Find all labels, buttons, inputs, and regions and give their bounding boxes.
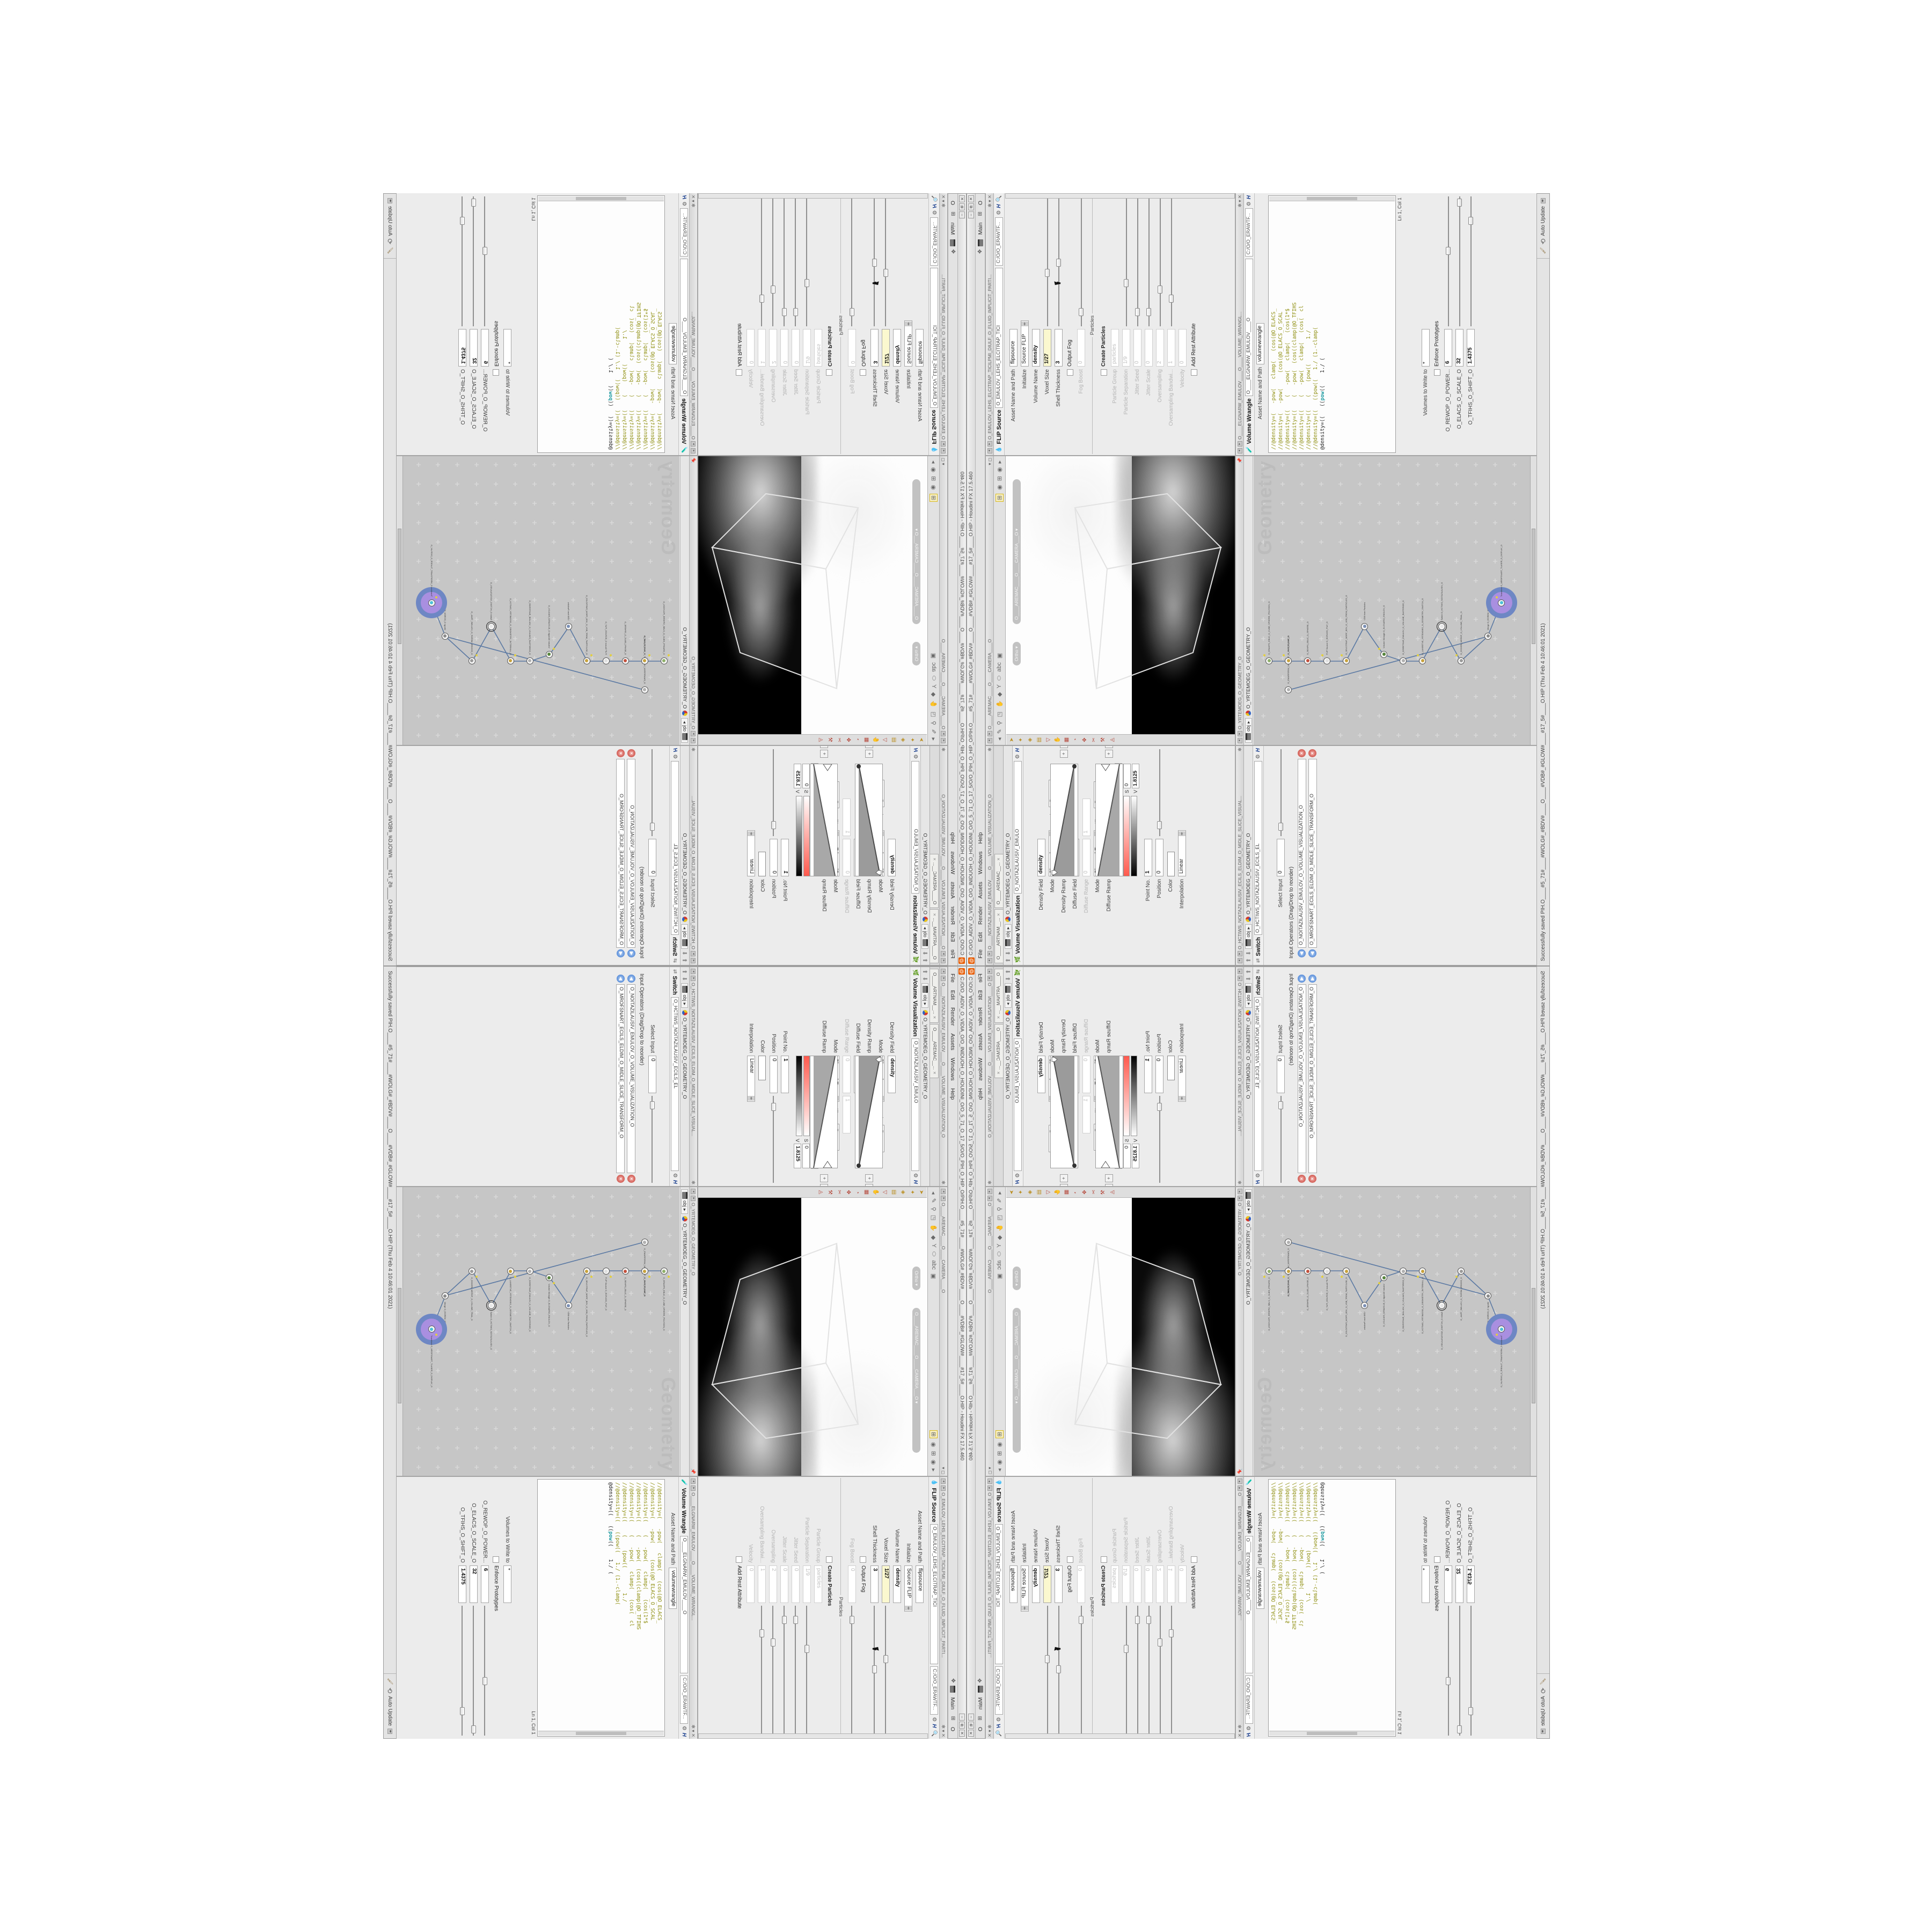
diffuse-ramp-widget[interactable] (1095, 1056, 1123, 1168)
toolbar-icon[interactable]: ⚲ (996, 1207, 1003, 1211)
slider-knob[interactable] (1045, 1655, 1050, 1663)
checkbox[interactable] (1067, 1556, 1073, 1563)
gear-icon[interactable]: ⚙ (1015, 754, 1021, 759)
pane-arrow-right-icon[interactable]: ▸ (941, 441, 946, 447)
toolbar-icon[interactable]: ▸ (930, 460, 937, 464)
toolbar-icon[interactable]: ◳ (996, 1215, 1003, 1220)
toolbar-icon[interactable]: ◳ (996, 712, 1003, 717)
network-node[interactable] (1361, 1302, 1368, 1309)
param-dropdown[interactable]: Linear (1178, 830, 1186, 876)
node-name-field[interactable]: O____ELGNARW_EMULOV____O (680, 1536, 688, 1673)
ortho-pill[interactable]: Ortho ▾ (912, 642, 920, 665)
menu-file[interactable]: File (949, 946, 957, 962)
reorder-icon[interactable]: ◀ (1298, 949, 1306, 957)
param-slider[interactable] (1168, 196, 1175, 326)
toolbar-icon[interactable]: ⚲ (930, 721, 937, 725)
menu-file[interactable]: File (977, 970, 984, 986)
operator-list-item[interactable]: ◀O_NOITAZILAUSIV_EMULOV_O_VOLUME_VISUALI… (1297, 975, 1307, 1183)
param-field[interactable]: 0 (770, 839, 778, 876)
tool-icon[interactable]: ✥ (845, 737, 851, 742)
param-field[interactable]: 1/27 (1043, 1565, 1051, 1603)
param-slider[interactable] (1277, 749, 1284, 836)
slider-knob[interactable] (471, 199, 476, 207)
tool-icon[interactable]: ✂ (836, 1190, 842, 1194)
reorder-icon[interactable]: ◀ (617, 975, 625, 983)
param-slider[interactable] (1156, 1096, 1163, 1183)
param-field[interactable]: 0 (1133, 1565, 1141, 1603)
pan-icon[interactable]: ✥ (977, 247, 983, 255)
slider-knob[interactable] (650, 1101, 655, 1109)
param-field[interactable]: 32 (1455, 329, 1463, 367)
close-icon[interactable]: ✕ (932, 858, 936, 861)
node-name-field[interactable]: O_NOITAZILAUSIV_EMULO (911, 761, 919, 893)
param-slider[interactable] (1157, 196, 1163, 326)
slider-knob[interactable] (1468, 1707, 1473, 1715)
checkbox[interactable] (1434, 369, 1440, 376)
nav-fwd-icon[interactable]: ⬇ (1005, 951, 1012, 956)
param-field[interactable]: 0 (1082, 839, 1091, 876)
tool-icon[interactable]: ⚒ (827, 1190, 833, 1195)
param-slider[interactable] (649, 1096, 656, 1183)
param-field[interactable]: * (503, 1565, 511, 1603)
breadcrumb[interactable]: obj▸ (1005, 924, 1012, 949)
slider-knob[interactable] (804, 279, 809, 287)
tab-volume-visualization[interactable]: Volume Visualization (1015, 896, 1021, 954)
pane-arrow-right-icon[interactable]: ▸ (691, 1196, 696, 1201)
menu-render[interactable]: Render (977, 1004, 984, 1029)
toolbar-icon[interactable]: ✋ (996, 700, 1003, 708)
grid-layout-icon[interactable]: ⊞ (996, 1430, 1004, 1438)
ramp-add-icon[interactable]: + (865, 750, 873, 758)
tool-icon[interactable]: ✦ (909, 1190, 915, 1194)
network-node[interactable] (1498, 1326, 1505, 1333)
tool-icon[interactable]: ✂ (836, 737, 842, 742)
reorder-icon[interactable]: ◀ (627, 949, 635, 957)
param-slider[interactable] (649, 749, 656, 836)
checkbox[interactable] (860, 1556, 867, 1563)
menu-extra[interactable]: O (949, 197, 957, 209)
delete-icon[interactable]: ✕ (1308, 749, 1316, 757)
tool-icon[interactable]: ◬ (1109, 738, 1115, 742)
update-toggle-icon[interactable]: ◂▸ (387, 1729, 392, 1734)
param-field[interactable]: 1 (1167, 1565, 1175, 1603)
param-field[interactable]: density (1032, 1565, 1040, 1603)
slider-knob[interactable] (1157, 1103, 1162, 1111)
param-field[interactable]: 1 (1167, 329, 1175, 367)
tool-icon[interactable]: ✋ (1055, 736, 1060, 743)
param-field[interactable]: 1/27 (882, 329, 890, 367)
param-dropdown[interactable]: Source FLIP (904, 320, 912, 367)
pane-arrow-left-icon[interactable]: ◂ (941, 958, 946, 963)
param-dropdown[interactable]: Source FLIP (904, 1565, 912, 1612)
param-field[interactable]: density (1037, 839, 1045, 876)
gear-icon[interactable]: ⚙ (996, 210, 1002, 215)
tool-icon[interactable]: ✋ (873, 1189, 879, 1195)
tool-icon[interactable]: ▽ (882, 1190, 888, 1195)
network-node[interactable] (1323, 657, 1330, 664)
value-gradient-bar[interactable] (796, 1056, 802, 1136)
pane-arrow-left-icon[interactable]: ◂ (941, 1189, 946, 1194)
pane-arrow-left-icon[interactable]: ◂ (987, 1479, 992, 1484)
slider-knob[interactable] (850, 308, 854, 316)
tool-icon[interactable]: ◔ (1073, 1190, 1079, 1194)
network-node[interactable] (1458, 1268, 1465, 1275)
pane-arrow-left-icon[interactable]: ◂ (691, 1189, 696, 1194)
menu-assets[interactable]: Assets (977, 878, 984, 903)
network-node[interactable] (507, 1268, 514, 1275)
node-name-field[interactable]: O____ELGNARW_EMULOV____O (1245, 1536, 1253, 1673)
tool-icon[interactable]: ➤ (918, 737, 924, 742)
network-node[interactable] (565, 623, 572, 630)
slider-knob[interactable] (1146, 1616, 1151, 1624)
param-slider[interactable] (1445, 1606, 1452, 1736)
val-field[interactable]: 1.8125 (1132, 1144, 1139, 1168)
network-node[interactable] (622, 1268, 629, 1275)
pane-arrow-left-icon[interactable]: ◂ (691, 958, 696, 963)
close-icon[interactable]: ✕ (997, 913, 1001, 916)
pane-tab[interactable]: O____ARTNAM__...✕ (994, 969, 1003, 1023)
tab-volume-wrangle[interactable]: Volume Wrangle (1246, 1488, 1253, 1533)
restore-button[interactable]: ⧉ (959, 203, 965, 210)
close-icon[interactable]: ✕ (997, 1016, 1001, 1019)
tool-icon[interactable]: ◔ (854, 1190, 860, 1194)
pane-arrow-right-icon[interactable]: ▸ (941, 1196, 946, 1201)
param-slider[interactable] (781, 196, 788, 326)
param-field[interactable]: 0 (1277, 1056, 1285, 1093)
param-slider[interactable] (792, 1606, 799, 1736)
nav-back-icon[interactable]: ⬆ (922, 958, 929, 963)
delete-icon[interactable]: ✕ (627, 1175, 635, 1183)
close-button[interactable]: ✕ (959, 1730, 965, 1737)
toolbar-icon[interactable]: Y (930, 1243, 937, 1247)
param-field[interactable]: 1 (1144, 1056, 1152, 1093)
pane-arrow-right-icon[interactable]: ▸ (691, 731, 696, 736)
layout-grid-icon[interactable]: ⊞ (950, 1714, 956, 1722)
magnifier-icon[interactable]: 🔍 (931, 1730, 937, 1737)
close-icon[interactable]: ✕ (997, 858, 1001, 861)
toolbar-icon[interactable]: ✋ (996, 1224, 1003, 1232)
network-canvas[interactable]: Geometry O_ERAHPS_EBUC_O_CUBE_SPHERE_POL… (1254, 456, 1530, 745)
pane-arrow-right-icon[interactable]: ▸ (987, 976, 992, 981)
network-node[interactable] (641, 686, 648, 693)
tool-icon[interactable]: ✦ (909, 737, 915, 742)
slider-knob[interactable] (1079, 1616, 1084, 1624)
pane-tab[interactable]: O____AREMAC__...✕ (994, 854, 1003, 908)
asset-path-field[interactable]: C:/O/O_ERAWTF... (680, 1675, 688, 1724)
toolbar-icon[interactable]: ▣ (996, 653, 1003, 658)
param-slider[interactable] (1157, 1606, 1163, 1736)
param-field[interactable]: 32 (470, 1565, 478, 1603)
param-field[interactable]: particles (1111, 1565, 1119, 1603)
desktop-selector[interactable]: Main (949, 1694, 957, 1714)
param-field[interactable]: 1.4375 (1467, 329, 1475, 367)
pane-arrow-right-icon[interactable]: ▸ (987, 1485, 992, 1491)
slider-knob[interactable] (1457, 199, 1462, 207)
pane-arrow-left-icon[interactable]: ◂ (1238, 738, 1242, 743)
restore-button[interactable]: ⧉ (959, 1722, 965, 1729)
param-field[interactable]: 2 (1156, 329, 1164, 367)
update-toggle-icon[interactable]: ◂▸ (1541, 1729, 1546, 1734)
value-gradient-bar[interactable] (1131, 1056, 1137, 1136)
param-field[interactable]: flipsource (1009, 329, 1018, 367)
tool-icon[interactable]: ▦ (863, 737, 869, 742)
pane-arrow-left-icon[interactable]: ◂ (691, 1479, 696, 1484)
ramp-add-icon[interactable]: + (1105, 750, 1113, 758)
network-node[interactable] (1265, 657, 1272, 664)
minimize-button[interactable]: − (968, 211, 974, 218)
param-field[interactable]: 1 (1082, 1096, 1091, 1133)
pane-arrow-right-icon[interactable]: ▸ (941, 976, 946, 981)
pane-tab[interactable]: O____AREMAC__...✕ (930, 1024, 939, 1078)
ramp-del-icon[interactable]: ✕ (865, 1184, 873, 1186)
network-canvas[interactable]: Geometry O_ERAHPS_EBUC_O_CUBE_SPHERE_POL… (1254, 1187, 1530, 1476)
breadcrumb[interactable]: obj▸ (682, 718, 689, 743)
pane-vscrollbar[interactable] (1005, 193, 1235, 199)
network-node[interactable] (641, 657, 648, 664)
pane-arrow-left-icon[interactable]: ◂ (1238, 1189, 1242, 1194)
viewport-canvas[interactable]: Ortho ▾ O____AREMAC____O____CAMERA___O ▾ (1006, 456, 1235, 734)
toolbar-icon[interactable]: ✎ (930, 729, 937, 734)
tool-icon[interactable]: ◬ (818, 738, 824, 742)
network-node[interactable] (526, 657, 533, 664)
tab-flip-source[interactable]: FLIP Source (996, 1488, 1002, 1522)
ramp-del-icon[interactable]: ✕ (1060, 1184, 1068, 1186)
slider-knob[interactable] (771, 1638, 775, 1646)
menu-edit[interactable]: Edit (949, 928, 957, 946)
toolbar-icon[interactable]: ◉ (996, 485, 1003, 490)
param-field[interactable]: particles (1111, 329, 1119, 367)
asset-path-field[interactable]: C:/O/O_ERAWTF... (1245, 1675, 1253, 1724)
param-field[interactable]: 6 (1444, 329, 1452, 367)
toolbar-icon[interactable]: ◉ (996, 1442, 1003, 1447)
reorder-icon[interactable]: ◀ (627, 975, 635, 983)
delete-icon[interactable]: ✕ (1298, 749, 1306, 757)
param-field[interactable]: 0 (1145, 329, 1153, 367)
tab-volume-wrangle[interactable]: Volume Wrangle (681, 398, 687, 444)
param-field[interactable]: density (1032, 329, 1040, 367)
operator-list-item[interactable]: ◀O_NOITAZILAUSIV_EMULOV_O_VOLUME_VISUALI… (1297, 749, 1307, 957)
pane-arrow-left-icon[interactable]: ◂ (1238, 1479, 1242, 1484)
saturation-gradient-bar[interactable] (1123, 796, 1130, 876)
node-name-field[interactable]: O_NOITAZILAUSIV_EMULO (1014, 761, 1022, 893)
ramp-del-icon[interactable]: ✕ (1105, 1184, 1113, 1186)
color-swatch[interactable] (1167, 1056, 1175, 1080)
param-field[interactable]: 0 (747, 329, 755, 367)
network-node[interactable] (1304, 657, 1311, 664)
menu-file[interactable]: File (949, 970, 957, 986)
pane-vscrollbar[interactable] (698, 193, 928, 199)
param-field[interactable]: 1 (843, 1096, 851, 1133)
asset-path-field[interactable]: C:/O/O_ERAWTF... (680, 208, 688, 257)
restore-button[interactable]: ⧉ (968, 203, 974, 210)
param-field[interactable]: 0 (1077, 329, 1085, 367)
tool-icon[interactable]: ◬ (818, 1190, 824, 1195)
slider-knob[interactable] (650, 823, 655, 831)
checkbox[interactable] (826, 1556, 833, 1563)
tool-icon[interactable]: ▤ (1036, 737, 1042, 742)
pane-arrow-left-icon[interactable]: ◂ (1238, 969, 1242, 974)
breadcrumb[interactable]: obj▸ (1245, 718, 1252, 743)
toolbar-icon[interactable]: ▸ (996, 1468, 1003, 1472)
param-field[interactable]: density (888, 1056, 896, 1093)
gear-icon[interactable]: ⚙ (1246, 201, 1252, 206)
pane-arrow-left-icon[interactable]: ◂ (987, 448, 992, 453)
desktop-selector[interactable]: Main (977, 1694, 984, 1714)
ramp-del-icon[interactable]: ✕ (1105, 746, 1113, 748)
network-node[interactable] (1458, 657, 1465, 664)
checkbox[interactable] (1101, 369, 1107, 376)
gear-icon[interactable]: ⚙ (1246, 1726, 1252, 1731)
menu-extra[interactable]: O (977, 1723, 984, 1735)
node-name-field[interactable]: O____ELGNARW_EMULOV____O (1245, 259, 1253, 396)
param-slider[interactable] (770, 749, 777, 836)
value-gradient-bar[interactable] (796, 796, 802, 876)
tool-icon[interactable]: ✦ (1018, 737, 1024, 742)
network-node[interactable] (428, 599, 435, 606)
menu-edit[interactable]: Edit (977, 986, 984, 1004)
pane-arrow-left-icon[interactable]: ◂ (691, 448, 696, 453)
pane-arrow-left-icon[interactable]: ◂ (987, 958, 992, 963)
param-dropdown[interactable]: Source FLIP (1021, 1565, 1029, 1612)
sat-field[interactable]: 0 (802, 1144, 810, 1168)
reorder-icon[interactable]: ◀ (1298, 975, 1306, 983)
network-node[interactable] (1498, 599, 1505, 606)
toolbar-icon[interactable]: ⊞ (996, 476, 1003, 481)
tool-icon[interactable]: ◈ (900, 1190, 906, 1195)
menu-help[interactable]: Help (949, 1085, 957, 1104)
slider-knob[interactable] (460, 217, 465, 225)
param-field[interactable]: 0 (1155, 839, 1163, 876)
delete-icon[interactable]: ✕ (627, 749, 635, 757)
toolbar-icon[interactable]: ⊞ (996, 1451, 1003, 1456)
param-slider[interactable] (1467, 196, 1474, 326)
tool-icon[interactable]: ▦ (863, 1190, 869, 1195)
slider-knob[interactable] (482, 1677, 487, 1685)
network-node[interactable] (661, 1268, 668, 1275)
operator-list-item[interactable]: ◀O_NOITAZILAUSIV_EMULOV_O_VOLUME_VISUALI… (626, 749, 636, 957)
network-node[interactable] (488, 1302, 495, 1309)
diffuse-ramp-widget[interactable] (810, 764, 838, 876)
pane-arrow-right-icon[interactable]: ▸ (691, 1485, 696, 1491)
toolbar-icon[interactable]: ▣ (996, 1274, 1003, 1279)
tab-volume-visualization[interactable]: Volume Visualization (1015, 978, 1021, 1036)
tool-icon[interactable]: ✦ (1018, 1190, 1024, 1194)
network-hscrollbar[interactable] (1530, 1187, 1536, 1476)
slider-knob[interactable] (793, 1616, 798, 1624)
param-field[interactable]: 0 (1179, 1565, 1187, 1603)
tool-icon[interactable]: ◈ (1027, 1190, 1033, 1195)
tool-icon[interactable]: ◬ (1109, 1190, 1115, 1195)
slider-knob[interactable] (771, 1103, 776, 1111)
refresh-icon[interactable]: ⟲ (386, 239, 394, 245)
param-slider[interactable] (1134, 196, 1141, 326)
tool-icon[interactable]: ✋ (1055, 1189, 1060, 1195)
pane-tab[interactable]: O____ARTNAM__...✕ (930, 909, 939, 963)
nav-back-icon[interactable]: ⬆ (922, 969, 929, 974)
tool-icon[interactable]: ➤ (1009, 737, 1015, 742)
param-field[interactable]: * (1422, 329, 1430, 367)
param-field[interactable]: 1/9 (1122, 329, 1130, 367)
viewport-canvas[interactable]: Ortho ▾ O____AREMAC____O____CAMERA___O ▾ (1006, 1198, 1235, 1476)
menu-help[interactable]: Help (949, 829, 957, 848)
param-field[interactable]: 0 (792, 329, 800, 367)
param-field[interactable]: 0 (780, 329, 788, 367)
menu-windows[interactable]: Windows (949, 847, 957, 878)
param-field[interactable]: 32 (1455, 1565, 1463, 1603)
grid-layout-icon[interactable]: ⊞ (930, 1430, 938, 1438)
pane-vscrollbar[interactable] (698, 1733, 928, 1739)
param-field[interactable]: 0 (1145, 1565, 1153, 1603)
sat-field[interactable]: 0 (1123, 764, 1131, 788)
tool-icon[interactable]: ◈ (900, 738, 906, 742)
asset-path-field[interactable]: C:/O/O_ERAWTF... (930, 1666, 938, 1715)
network-node[interactable] (428, 1326, 435, 1333)
code-vscrollbar[interactable] (538, 196, 664, 201)
checkbox[interactable] (493, 1556, 500, 1563)
nav-fwd-icon[interactable]: ⬇ (922, 976, 929, 981)
refresh-icon[interactable]: ⟲ (1539, 239, 1548, 245)
param-field[interactable]: 1/9 (803, 1565, 811, 1603)
network-node[interactable] (565, 1302, 572, 1309)
toolbar-icon[interactable]: Y (930, 684, 937, 688)
node-name-field[interactable]: O____ELGNARW_EMULOV____O (680, 259, 688, 396)
menu-render[interactable]: Render (977, 903, 984, 928)
pane-arrow-left-icon[interactable]: ◂ (1238, 958, 1242, 963)
tab-volume-visualization[interactable]: Volume Visualization (912, 978, 919, 1036)
param-field[interactable]: 0 (1077, 1565, 1085, 1603)
asset-name-field[interactable]: volumewrangle (669, 323, 677, 364)
toolbar-icon[interactable]: ✎ (996, 1198, 1003, 1203)
pane-arrow-left-icon[interactable]: ◂ (941, 448, 946, 453)
slider-knob[interactable] (883, 1655, 888, 1663)
network-node[interactable] (546, 651, 553, 658)
ramp-add-icon[interactable]: + (820, 750, 828, 758)
diffuse-ramp-widget[interactable] (810, 1056, 838, 1168)
tab-switch[interactable]: Switch (1255, 976, 1262, 994)
param-slider[interactable] (871, 1606, 878, 1736)
asset-path-field[interactable]: C:/O/O_ERAWTF... (995, 217, 1003, 266)
delete-icon[interactable]: ✕ (617, 749, 625, 757)
param-field[interactable]: 1/9 (1122, 1565, 1130, 1603)
network-node[interactable] (1323, 1268, 1330, 1275)
network-node[interactable] (1285, 657, 1292, 664)
menu-windows[interactable]: Windows (977, 1054, 984, 1085)
menu-render[interactable]: Render (949, 903, 957, 928)
param-slider[interactable] (770, 1096, 777, 1183)
ramp-add-icon[interactable]: + (1060, 750, 1068, 758)
val-field[interactable]: 1.8125 (1132, 764, 1139, 788)
param-slider[interactable] (1145, 196, 1152, 326)
operator-list-item[interactable]: ◀O_NOITAZILAUSIV_EMULOV_O_VOLUME_VISUALI… (626, 975, 636, 1183)
network-hscrollbar[interactable] (397, 1187, 403, 1476)
network-node[interactable] (641, 1239, 648, 1246)
param-slider[interactable] (781, 1606, 788, 1736)
node-name-field[interactable]: O_EMULOV_LEHS_ELCITRAP_TICI (995, 268, 1003, 408)
node-name-field[interactable]: O_NOITAZILAUSIV_EMULO (1014, 1038, 1022, 1170)
network-node[interactable] (583, 1268, 590, 1275)
slider-knob[interactable] (1169, 1629, 1174, 1637)
network-hscrollbar[interactable] (1530, 456, 1536, 745)
param-slider[interactable] (758, 196, 765, 326)
param-field[interactable]: 0 (780, 1565, 788, 1603)
checkbox[interactable] (736, 369, 743, 376)
tab-switch[interactable]: Switch (672, 976, 678, 994)
param-field[interactable]: 1 (758, 1565, 766, 1603)
auto-update-selector[interactable]: Auto Update (387, 206, 393, 236)
toolbar-icon[interactable]: ▣ (930, 653, 937, 658)
pane-tab[interactable]: O____ARTNAM__...✕ (994, 909, 1003, 963)
network-canvas[interactable]: Geometry O_ERAHPS_EBUC_O_CUBE_SPHERE_POL… (403, 456, 679, 745)
